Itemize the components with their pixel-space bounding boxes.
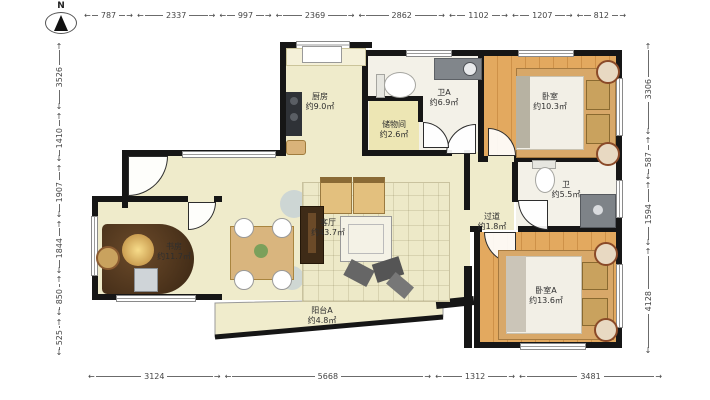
north-indicator: N <box>44 1 78 34</box>
wall <box>366 50 622 56</box>
dimension: 1312 <box>435 372 515 381</box>
wall <box>418 96 423 122</box>
wall <box>464 266 472 348</box>
kitchen-sink <box>302 46 342 63</box>
dimension: 3481 <box>519 372 662 381</box>
desk-lamp <box>122 234 154 266</box>
dining-chair <box>272 270 292 290</box>
dimension: 3306 <box>641 44 655 135</box>
floorplan-page: { "north": {"label": "N"}, "dimensions":… <box>0 0 710 400</box>
dimension: 1844 <box>52 222 66 275</box>
floorplan: 厨房约9.0㎡ 卫A约6.9㎡ 储物间约2.6㎡ 卧室约10.3㎡ 卫约5.5㎡… <box>88 40 628 355</box>
north-arrow-icon <box>45 12 77 34</box>
pillow <box>586 80 610 110</box>
bed-runner <box>506 256 526 332</box>
window <box>116 295 196 302</box>
dimension: 1594 <box>641 183 655 246</box>
wall <box>92 196 188 202</box>
nightstand <box>594 242 618 266</box>
wall <box>512 162 518 202</box>
room-label-kitchen: 厨房约9.0㎡ <box>306 92 335 112</box>
dimension: 1102 <box>449 11 508 20</box>
toilet-icon <box>384 72 416 98</box>
room-label-bedroom-a: 卧室A约13.6㎡ <box>529 286 563 306</box>
window <box>616 180 623 218</box>
sofa-seat <box>353 177 385 214</box>
dimension-chain-left: 3526 1410 1907 1844 850 525 <box>52 44 66 356</box>
dimension: 1207 <box>512 11 573 20</box>
dimension: 5668 <box>225 372 432 381</box>
dimension: 2369 <box>276 11 355 20</box>
north-label: N <box>44 1 78 11</box>
nightstand <box>596 142 620 166</box>
window <box>406 50 452 57</box>
wall <box>474 232 480 348</box>
wall <box>464 150 470 210</box>
room-label-bath: 卫约5.5㎡ <box>552 180 581 200</box>
dimension-chain-bottom: 3124 5668 1312 3481 <box>88 372 662 381</box>
dimension-chain-right: 3306 587 1594 4128 <box>641 44 655 354</box>
dimension: 850 <box>52 277 66 316</box>
dimension: 2862 <box>358 11 445 20</box>
room-label-bath-a: 卫A约6.9㎡ <box>430 88 459 108</box>
dining-chair <box>234 270 254 290</box>
table-plant <box>254 244 268 258</box>
dimension: 997 <box>219 11 271 20</box>
room-label-living: 客厅约43.7㎡ <box>311 218 345 238</box>
pillow <box>582 262 608 290</box>
kitchen-cart <box>286 140 306 155</box>
vanity <box>434 58 482 80</box>
room-label-hallway: 过道约1.8㎡ <box>478 212 507 232</box>
window <box>91 216 98 276</box>
wall <box>366 150 452 156</box>
dining-chair <box>272 218 292 238</box>
window <box>518 50 574 57</box>
nightstand <box>596 60 620 84</box>
dimension: 3526 <box>52 44 66 111</box>
shower <box>580 194 616 228</box>
dimension: 525 <box>52 320 66 356</box>
dimension: 587 <box>641 138 655 180</box>
dimension: 2337 <box>137 11 215 20</box>
dimension-chain-top: 787 2337 997 2369 2862 1102 1207 812 <box>84 11 626 20</box>
dimension: 4128 <box>641 249 655 354</box>
dimension: 812 <box>577 11 626 20</box>
room-label-bedroom: 卧室约10.3㎡ <box>533 92 567 112</box>
desk-screen <box>134 268 158 292</box>
dining-chair <box>234 218 254 238</box>
window <box>616 264 623 328</box>
stove <box>286 92 302 136</box>
nightstand <box>594 318 618 342</box>
dimension: 1907 <box>52 166 66 219</box>
dimension: 787 <box>84 11 133 20</box>
room-label-balcony-a: 阳台A约4.8㎡ <box>308 306 337 326</box>
pillow <box>586 114 610 144</box>
sofa-seat <box>320 177 352 214</box>
window <box>182 151 276 158</box>
window <box>520 343 586 350</box>
bed-runner <box>516 76 530 148</box>
room-label-storage: 储物间约2.6㎡ <box>380 120 409 140</box>
study-chair <box>96 246 120 270</box>
room-label-study: 书房约11.7㎡ <box>157 242 191 262</box>
coffee-table <box>340 216 392 262</box>
dimension: 3124 <box>88 372 221 381</box>
window <box>616 78 623 136</box>
dimension: 1410 <box>52 114 66 163</box>
